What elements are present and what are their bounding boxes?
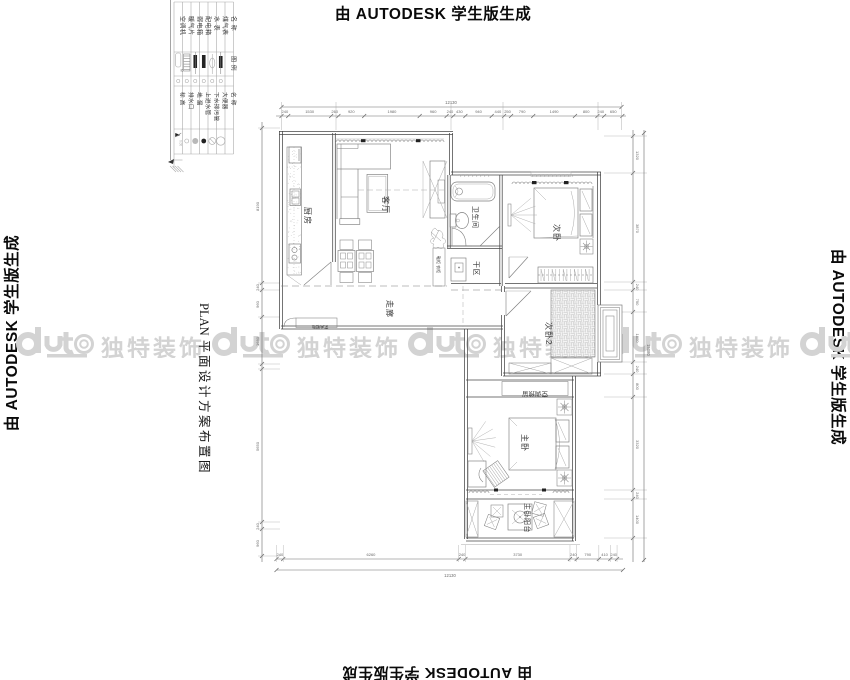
svg-text:790: 790 — [584, 552, 591, 557]
svg-text:3320: 3320 — [635, 440, 640, 450]
svg-text:大便器: 大便器 — [221, 92, 229, 110]
svg-text:240: 240 — [597, 109, 604, 114]
svg-text:430: 430 — [456, 109, 463, 114]
svg-text:440: 440 — [495, 109, 502, 114]
svg-text:暖气片: 暖气片 — [187, 16, 195, 36]
svg-text:240: 240 — [255, 283, 260, 290]
svg-text:3730: 3730 — [513, 552, 523, 557]
svg-text:平面设计方案布置图: 平面设计方案布置图 — [197, 340, 212, 475]
svg-text:名 称: 名 称 — [229, 92, 237, 106]
svg-text:15080: 15080 — [646, 344, 651, 356]
svg-text:800: 800 — [635, 383, 640, 390]
svg-text:790: 790 — [635, 299, 640, 306]
svg-text:8190: 8190 — [255, 201, 260, 211]
svg-text:走廊: 走廊 — [385, 300, 395, 318]
svg-text:260: 260 — [331, 109, 338, 114]
svg-text:250: 250 — [504, 109, 511, 114]
svg-text:1530: 1530 — [305, 109, 315, 114]
svg-text:空调机: 空调机 — [178, 16, 186, 36]
svg-text:240: 240 — [447, 109, 454, 114]
svg-text:800: 800 — [583, 109, 590, 114]
svg-text:1490: 1490 — [550, 109, 560, 114]
svg-text:弱电箱: 弱电箱 — [195, 16, 203, 36]
svg-text:1320: 1320 — [635, 151, 640, 161]
svg-text:配电箱: 配电箱 — [204, 16, 212, 36]
svg-text:920: 920 — [348, 109, 355, 114]
svg-text:M: M — [179, 69, 183, 72]
svg-text:240: 240 — [277, 552, 284, 557]
svg-text:0.00: 0.00 — [178, 140, 182, 146]
svg-text:标 高: 标 高 — [178, 92, 186, 106]
svg-text:名 称: 名 称 — [229, 16, 237, 31]
svg-text:650: 650 — [610, 109, 617, 114]
svg-text:240: 240 — [570, 552, 577, 557]
svg-text:960: 960 — [430, 109, 437, 114]
svg-text:1680: 1680 — [255, 336, 260, 346]
svg-text:12130: 12130 — [444, 573, 456, 578]
svg-text:鞋柜 衣柜: 鞋柜 衣柜 — [436, 256, 442, 273]
svg-text:12130: 12130 — [445, 100, 457, 105]
svg-text:1980: 1980 — [387, 109, 397, 114]
svg-text:次卧: 次卧 — [552, 224, 562, 242]
svg-text:5650: 5650 — [255, 441, 260, 451]
svg-text:下水排污管: 下水排污管 — [212, 92, 220, 122]
svg-text:图 例: 图 例 — [229, 56, 237, 71]
svg-text:1400: 1400 — [635, 515, 640, 525]
svg-text:煤气表: 煤气表 — [221, 16, 229, 36]
svg-text:地 漏: 地 漏 — [195, 92, 203, 106]
svg-text:790: 790 — [519, 109, 526, 114]
svg-text:PLAN: PLAN — [197, 303, 211, 336]
svg-text:240: 240 — [635, 492, 640, 499]
svg-text:主卧阳台: 主卧阳台 — [523, 503, 532, 533]
svg-text:240: 240 — [610, 552, 617, 557]
svg-text:960: 960 — [255, 539, 260, 546]
svg-text:空调预留: 空调预留 — [522, 390, 548, 399]
svg-text:1800: 1800 — [635, 334, 640, 344]
svg-text:940: 940 — [475, 109, 482, 114]
svg-text:干区: 干区 — [472, 261, 480, 276]
svg-text:排水口: 排水口 — [187, 92, 195, 110]
svg-text:主卧: 主卧 — [520, 434, 530, 452]
svg-text:水 表: 水 表 — [212, 16, 220, 31]
svg-text:240: 240 — [635, 366, 640, 373]
svg-text:3870: 3870 — [635, 224, 640, 234]
svg-text:240: 240 — [282, 109, 289, 114]
svg-text:6260: 6260 — [367, 552, 377, 557]
svg-text:410: 410 — [601, 552, 608, 557]
svg-text:玄关鞋柜: 玄关鞋柜 — [312, 324, 329, 331]
svg-text:上进水管: 上进水管 — [204, 92, 212, 116]
svg-text:厨房: 厨房 — [303, 207, 313, 225]
svg-text:240: 240 — [255, 522, 260, 529]
svg-text:客厅: 客厅 — [381, 196, 391, 214]
svg-text:960: 960 — [255, 300, 260, 307]
svg-text:240: 240 — [459, 552, 466, 557]
svg-text:卫生间: 卫生间 — [471, 206, 480, 229]
svg-text:次卧2: 次卧2 — [544, 322, 554, 345]
